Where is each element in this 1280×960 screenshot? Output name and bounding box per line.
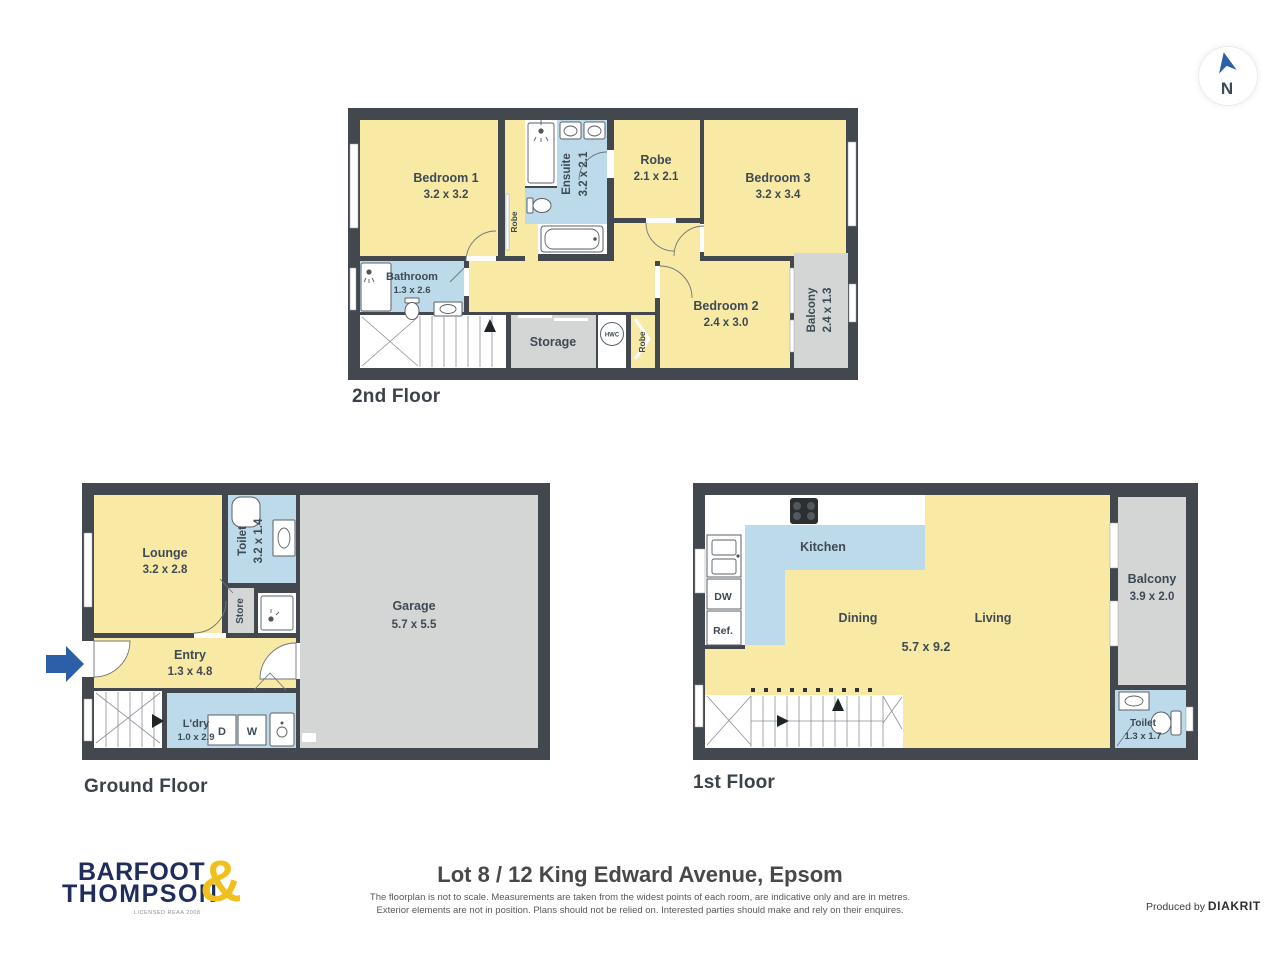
- storage-door-panel: [518, 315, 552, 318]
- living-dims: 5.7 x 9.2: [902, 640, 951, 654]
- toilet1f-basin-icon: [1119, 692, 1149, 710]
- bedroom3-dims: 3.2 x 3.4: [756, 189, 801, 201]
- hall-upper: [614, 223, 700, 261]
- gf-shower: [258, 593, 296, 633]
- compass: N: [1198, 46, 1258, 106]
- room-bedroom-2: [660, 261, 790, 368]
- hwc-label: HWC: [605, 333, 620, 339]
- disclaimer-line-2: Exterior elements are not in position. P…: [0, 905, 1280, 918]
- robe1-label: Robe: [509, 211, 519, 233]
- robe-room-label: Robe: [640, 153, 671, 167]
- balcony2-label: Balcony: [806, 287, 818, 332]
- cooktop-icon: [790, 498, 818, 524]
- robe2-label: Robe: [637, 331, 647, 353]
- washer-label: W: [247, 726, 258, 738]
- bedroom2-label: Bedroom 2: [693, 299, 758, 313]
- ensuite-label: Ensuite: [561, 153, 573, 195]
- caption-ground-floor: Ground Floor: [84, 776, 208, 798]
- bathtub-icon: [541, 226, 603, 252]
- entry-dims: 1.3 x 4.8: [168, 666, 213, 678]
- kitchen-sink-icon: [707, 535, 741, 577]
- dryer-label: D: [218, 726, 226, 738]
- balcony2-dims: 2.4 x 1.3: [822, 288, 834, 333]
- dishwasher-label: DW: [714, 591, 732, 603]
- toilet-gf-dims: 3.2 x 1.4: [253, 518, 265, 563]
- ensuite-toilet-icon: [527, 198, 551, 213]
- disclaimer-text: The floorplan is not to scale. Measureme…: [0, 892, 1280, 918]
- room-living: [925, 495, 1110, 748]
- robe-room-dims: 2.1 x 2.1: [634, 171, 679, 183]
- produced-by: Produced by DIAKRIT: [1146, 899, 1261, 913]
- room-bedroom-1: [360, 120, 498, 256]
- balcony1-dims: 3.9 x 2.0: [1130, 591, 1175, 603]
- producer-brand: DIAKRIT: [1208, 899, 1261, 913]
- room-bedroom-3: [704, 120, 846, 256]
- lounge-dims: 3.2 x 2.8: [143, 564, 188, 576]
- stairs-1st-floor: [705, 695, 903, 748]
- kitchen-label: Kitchen: [800, 540, 846, 554]
- lounge-label: Lounge: [142, 546, 187, 560]
- toilet-gf-label: Toilet: [237, 526, 249, 556]
- living-label: Living: [975, 611, 1012, 625]
- disclaimer-line-1: The floorplan is not to scale. Measureme…: [0, 892, 1280, 905]
- floorplan-1st-floor: Kitchen DW Ref. Dining Living 5.7 x 9.2 …: [693, 483, 1198, 760]
- stairs-detail-gf: [96, 692, 164, 747]
- dining-label: Dining: [839, 611, 878, 625]
- floorplan-ground-floor: Lounge 3.2 x 2.8 Toilet 3.2 x 1.4 Store …: [40, 483, 550, 760]
- ensuite-dims: 3.2 x 2.1: [578, 151, 590, 196]
- laundry-label: L'dry: [183, 718, 210, 730]
- room-robe: [614, 120, 700, 218]
- bathroom-toilet-icon: [405, 298, 419, 320]
- toilet1f-label: Toilet: [1130, 718, 1157, 729]
- storage-door-panel: [554, 318, 588, 321]
- store-label: Store: [235, 598, 246, 624]
- stairs-2nd-floor: [360, 315, 506, 368]
- bedroom2-dims: 2.4 x 3.0: [704, 317, 749, 329]
- room-balcony-2nd: [794, 253, 848, 368]
- laundry-dims: 1.0 x 2.9: [178, 732, 215, 743]
- produced-by-prefix: Produced by: [1146, 901, 1205, 913]
- entry-arrow-icon: [46, 646, 84, 682]
- north-arrow-icon: [1215, 50, 1237, 73]
- compass-icon: N: [1199, 47, 1257, 105]
- storage-label: Storage: [530, 335, 577, 349]
- entry-label: Entry: [174, 648, 206, 662]
- floorplan-2nd-floor: Bedroom 1 3.2 x 3.2 Ensuite 3.2 x 2.1 Ro…: [348, 108, 858, 380]
- balcony1-label: Balcony: [1128, 572, 1177, 586]
- bathroom-dims: 1.3 x 2.6: [394, 285, 431, 296]
- rooms-ground-floor: [94, 495, 538, 748]
- bathroom-label: Bathroom: [386, 271, 438, 283]
- bedroom1-dims: 3.2 x 3.2: [424, 189, 469, 201]
- garage-dims: 5.7 x 5.5: [392, 619, 437, 631]
- bedroom1-label: Bedroom 1: [413, 171, 478, 185]
- bathroom-vanity-icon: [434, 302, 462, 316]
- gf-vanity-icon: [273, 520, 295, 556]
- property-address-title: Lot 8 / 12 King Edward Avenue, Epsom: [0, 862, 1280, 888]
- hall-passage: [525, 224, 538, 261]
- caption-1st-floor: 1st Floor: [693, 772, 775, 794]
- bedroom3-label: Bedroom 3: [745, 171, 810, 185]
- fridge-label: Ref.: [713, 625, 733, 637]
- toilet1f-dims: 1.3 x 1.7: [1125, 731, 1162, 742]
- caption-2nd-floor: 2nd Floor: [352, 386, 440, 408]
- compass-n-label: N: [1221, 79, 1233, 98]
- laundry-tub-icon: [270, 713, 294, 746]
- floorplan-page: N: [0, 0, 1280, 960]
- garage-label: Garage: [392, 599, 435, 613]
- room-kitchen-2: [745, 525, 785, 645]
- kitchen-bench: [745, 495, 925, 525]
- hallway: [469, 261, 655, 312]
